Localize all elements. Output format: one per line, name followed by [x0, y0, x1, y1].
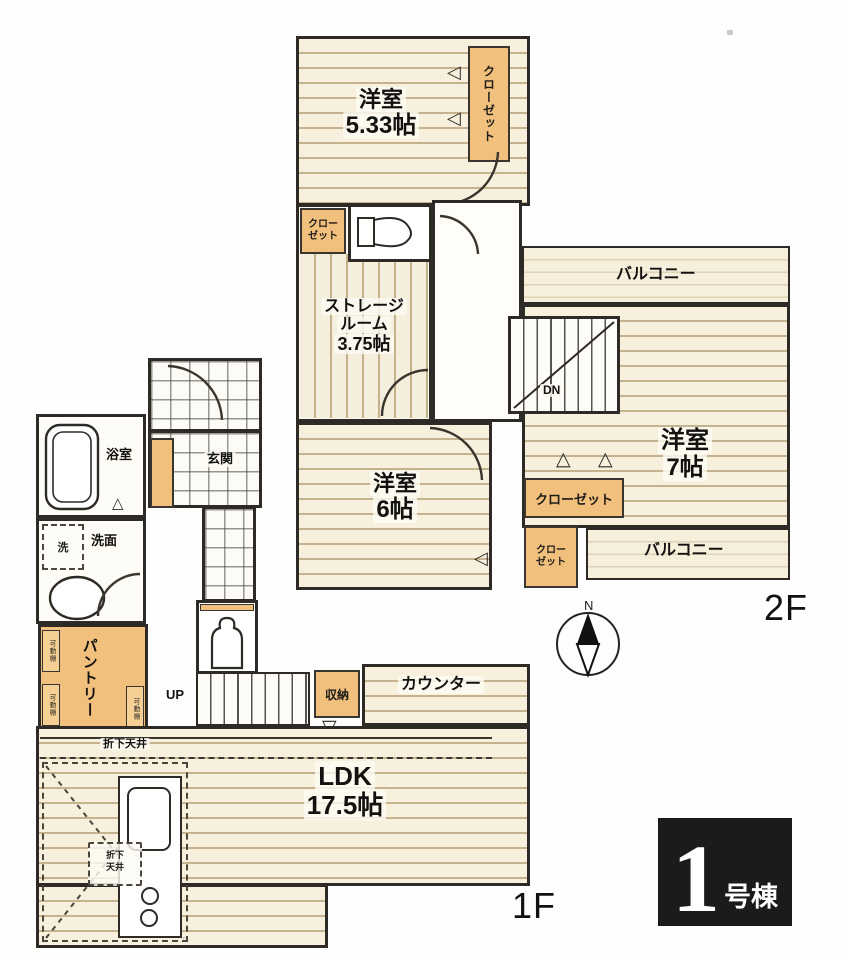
- room-2f-5-33-size: 5.33帖: [343, 112, 420, 139]
- closet-2f-east-label: クローゼット: [535, 489, 613, 508]
- movable-shelf-label: 可動棚: [46, 694, 56, 717]
- ceiling-dashed-line: [40, 757, 492, 759]
- badge-number: 1: [672, 832, 720, 926]
- bathtub-icon: [43, 422, 101, 512]
- movable-shelf: 可動棚: [42, 684, 60, 726]
- door-arrow-icon: ◁: [447, 108, 461, 129]
- counter-label: カウンター: [398, 676, 484, 694]
- storage-room-label: ストレージ ルーム 3.75帖: [298, 298, 430, 355]
- compass-icon: N: [548, 596, 630, 682]
- door-arc-icon: [380, 368, 430, 418]
- pantry-label: パントリー: [80, 638, 97, 734]
- floor2-label: 2F: [764, 588, 808, 628]
- ceiling-note-label: 折下天井: [100, 738, 150, 750]
- hall-1f: [202, 506, 256, 602]
- compass-north-text: N: [584, 598, 593, 613]
- storage-1f: 収納: [314, 670, 360, 718]
- room-2f-6-size: 6帖: [373, 496, 416, 523]
- shoe-cabinet: [150, 438, 174, 508]
- stairs-2f-label: DN: [540, 384, 563, 397]
- storage-room-line3: 3.75帖: [334, 334, 393, 354]
- laundry-label: 洗: [58, 539, 69, 555]
- closet-2f-east: クローゼット: [524, 478, 624, 518]
- kitchen-note-line1: 折下: [106, 850, 124, 860]
- closet-2f-south-line1: クロー: [536, 545, 566, 556]
- balcony-south-label: バルコニー: [644, 542, 724, 560]
- closet-2f-north-label: クローゼット: [481, 65, 498, 143]
- closet-2f-north: クローゼット: [468, 46, 510, 162]
- kitchen-note-line2: 天井: [106, 862, 124, 872]
- kitchen-ceiling-note: 折下 天井: [88, 842, 142, 886]
- room-2f-5-33-label: 洋室 5.33帖: [306, 88, 456, 140]
- movable-shelf: 可動棚: [42, 630, 60, 672]
- closet-2f-nw-line2: ゼット: [308, 231, 338, 242]
- ldk-name: LDK: [315, 761, 374, 791]
- room-2f-6-name: 洋室: [370, 471, 420, 496]
- movable-shelf-label: 可動棚: [130, 698, 140, 721]
- door-arrow-icon: △: [112, 494, 124, 512]
- laundry-space: 洗: [42, 524, 84, 570]
- floor1-label: 1F: [512, 886, 556, 926]
- bath-label: 浴室: [103, 448, 135, 463]
- storage-room-line2: ルーム: [337, 316, 391, 333]
- toilet-icon: [356, 212, 422, 252]
- entrance-label: 玄関: [204, 452, 236, 467]
- toilet-icon: [206, 614, 248, 670]
- toilet-sill: [200, 604, 254, 611]
- stairs-1f: [196, 672, 310, 726]
- door-arc-icon: [444, 150, 500, 206]
- door-arc-icon: [428, 426, 484, 482]
- room-2f-7-size: 7帖: [663, 454, 706, 481]
- room-2f-7-label: 洋室 7帖: [620, 428, 750, 482]
- storage-1f-label: 収納: [325, 686, 349, 703]
- door-arrow-icon: ◁: [474, 548, 488, 569]
- movable-shelf-label: 可動棚: [46, 640, 56, 663]
- ldk-label: LDK 17.5帖: [270, 762, 420, 820]
- room-2f-7-name: 洋室: [658, 427, 712, 454]
- closet-2f-nw-line1: クロー: [308, 219, 338, 230]
- closet-2f-northwest: クロー ゼット: [300, 208, 346, 254]
- stairs-diagonal-icon: [508, 316, 620, 414]
- washroom-label: 洗面: [88, 534, 120, 549]
- room-2f-5-33-name: 洋室: [356, 87, 406, 112]
- floor-plan-page: 洋室 5.33帖 クローゼット ◁ ◁ クロー ゼット ▽ ストレージ ルーム …: [0, 0, 847, 960]
- badge-suffix: 号棟: [724, 875, 778, 914]
- balcony-north-label: バルコニー: [616, 266, 696, 284]
- door-arc-icon: [166, 364, 224, 422]
- door-arrow-icon: △: [556, 448, 571, 471]
- door-arc-icon: [96, 572, 142, 618]
- stairs-1f-label: UP: [166, 688, 184, 703]
- closet-2f-south: クロー ゼット: [524, 526, 578, 588]
- scan-artifact: [727, 30, 733, 35]
- door-arc-icon: [438, 214, 480, 256]
- closet-2f-south-line2: ゼット: [536, 557, 566, 568]
- building-number-badge: 1 号棟: [658, 818, 792, 926]
- door-arrow-icon: ◁: [447, 62, 461, 83]
- ldk-size: 17.5帖: [304, 790, 387, 820]
- storage-room-line1: ストレージ: [321, 298, 407, 315]
- door-arrow-icon: △: [598, 448, 613, 471]
- counter-area: [362, 664, 530, 726]
